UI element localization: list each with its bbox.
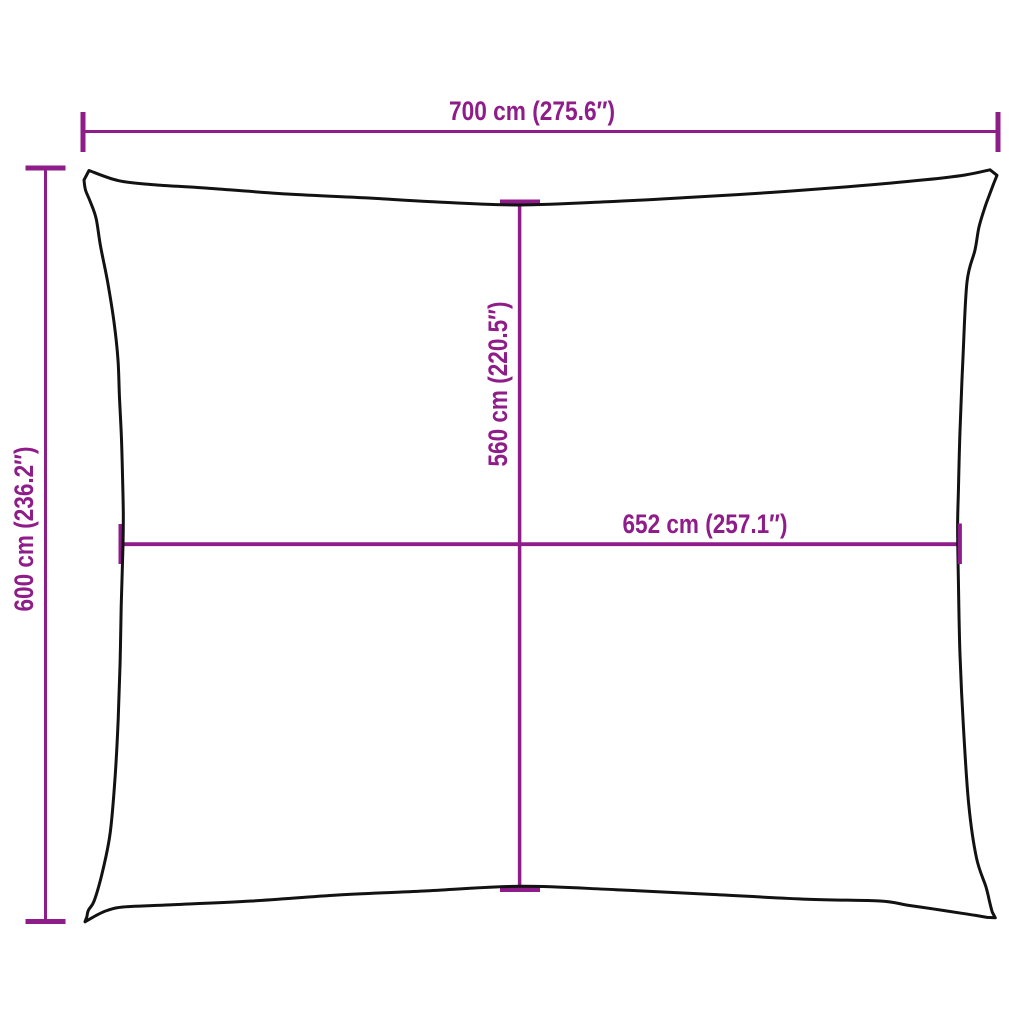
svg-text:652 cm (257.1″): 652 cm (257.1″)	[623, 509, 788, 539]
svg-text:700 cm (275.6″): 700 cm (275.6″)	[449, 96, 615, 126]
svg-text:560 cm (220.5″): 560 cm (220.5″)	[483, 302, 513, 467]
svg-text:600 cm (236.2″): 600 cm (236.2″)	[9, 447, 39, 612]
